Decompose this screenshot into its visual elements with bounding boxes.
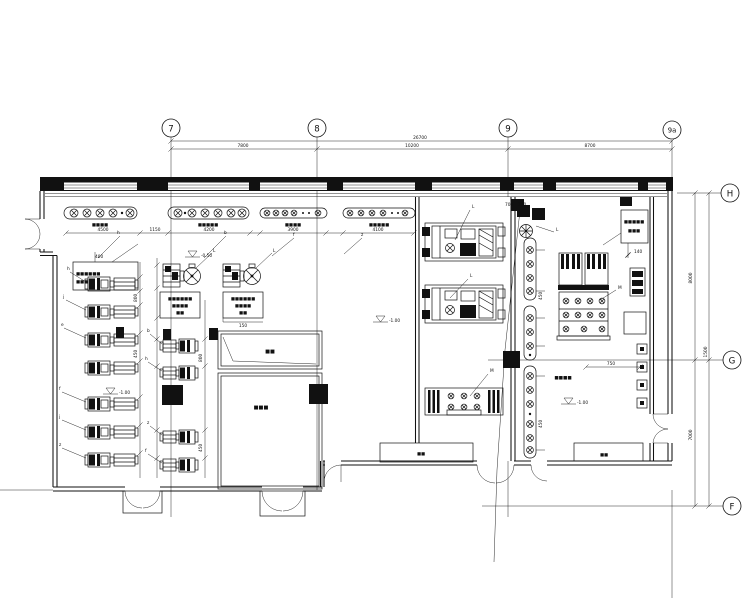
callout: j [58,414,60,420]
dim-small: 700 [505,202,513,208]
right-wall-door [653,414,668,443]
dim-right: 7000 [688,429,694,440]
callout: b [224,230,227,236]
dim-small: 140 [634,249,642,255]
chiller-1 [422,223,505,261]
dim-seg: 10200 [405,143,419,149]
bottom-door-3 [477,465,514,483]
section-leader-line [494,210,520,562]
trench-right [574,443,643,461]
air-unit [425,388,503,415]
partition-shaft [650,197,654,461]
niche-door [324,465,341,482]
header-label: ■■■■■ [369,223,389,228]
grid-label: F [730,503,735,513]
softener-label: ■■■■■ [624,220,644,225]
dim-small: 450 [198,444,204,452]
left-wall [40,191,57,487]
callout: M [490,368,494,374]
partition-mid [511,197,515,461]
room-label-garage: ■■■ [254,405,269,411]
left-wall-door [25,219,40,249]
room-label-right: ■■■■ [554,376,571,381]
level-text: -1.00 [119,390,130,396]
callout: z [361,233,364,238]
bottom-door-4 [531,465,547,481]
trench-label: ■■ [600,453,608,458]
callout: f [145,448,147,454]
dim-right: 1500 [703,346,709,357]
callout: h [117,230,120,236]
header-label: ■■■■ [92,223,108,228]
callout: L [213,248,216,254]
pump-box-label: ■■■■■■ [231,297,255,302]
pump-box-label: ■■■■■■ [168,297,192,302]
right-wall [668,177,672,461]
equipment-pad [624,312,646,334]
plan-svg: 7 8 9 9a H G F 26700 7800 10200 8700 800… [0,0,755,598]
softener-label: ■■■ [628,229,640,234]
grid-label: 9a [668,127,677,135]
dim-header: 1150 [150,227,161,233]
level-text: -1.00 [577,400,588,406]
partition-garage-plant [416,197,420,443]
control-panel [630,268,645,296]
top-exterior-wall [40,177,673,197]
electrical-boxes [637,344,647,408]
grid-lines [0,137,723,598]
pipe-header-4 [343,208,415,218]
dim-small: 750 [518,202,526,208]
pump-box-label: ■■ [239,311,247,316]
callout: h [145,356,148,362]
grid-label: 8 [314,125,319,135]
note-box-line: ■■■ [76,280,88,285]
grid-label: H [727,190,733,200]
grid-label: 7 [168,125,173,135]
doors [25,219,668,516]
header-label: ■■■■ [285,223,301,228]
callout: L [556,227,559,233]
dim-small: 400 [95,254,103,260]
pump-column-middle [160,339,198,472]
pump-column-left [85,277,138,467]
pump-box-label: ■■■■ [172,304,188,309]
garage-room [218,373,322,489]
grid-label: G [729,357,736,367]
pipe-header-2 [168,207,249,219]
dim-seg: 8700 [585,143,596,149]
callout: M [618,285,622,291]
pump-box-label: ■■■■ [235,304,251,309]
level-text: -0.50 [201,253,212,259]
dim-small: 750 [607,361,615,367]
pipe-header-1 [64,207,137,219]
callout: f [59,386,61,392]
trench-left [380,443,473,462]
dim-small: 450 [538,292,544,300]
callout: L [470,273,473,279]
room-label-ramp: ■■ [265,349,275,355]
callout: L [472,204,475,210]
heat-exchanger [557,253,610,340]
dim-small: 450 [538,420,544,428]
grid-label: 9 [505,125,510,135]
door-recess-2 [260,491,305,516]
callout: b [147,328,150,334]
callout: e [61,323,64,328]
bottom-door-1 [125,491,160,508]
pump-box-label: ■■ [176,311,184,316]
dim-small: 800 [198,354,204,362]
trench-label: ■■ [417,452,425,457]
note-box-line: ■■■■■■ [76,272,100,277]
window-sill-lines [45,194,667,197]
dim-seg: 7800 [238,143,249,149]
dim-small: 800 [133,294,139,302]
dim-right: 8000 [688,272,694,283]
callout: z [59,443,62,448]
header-label: ■■■■■ [198,223,218,228]
callout: z [147,421,150,426]
dim-small: 150 [239,323,247,329]
level-text: -1.00 [389,318,400,324]
dim-small: 450 [133,350,139,358]
callout: h [67,266,70,272]
callout: j [62,294,64,300]
floor-plan-drawing: 7 8 9 9a H G F 26700 7800 10200 8700 800… [0,0,755,598]
bottom-door-2 [262,491,303,511]
dim-overall: 26700 [413,135,427,141]
chiller-2 [422,285,505,323]
